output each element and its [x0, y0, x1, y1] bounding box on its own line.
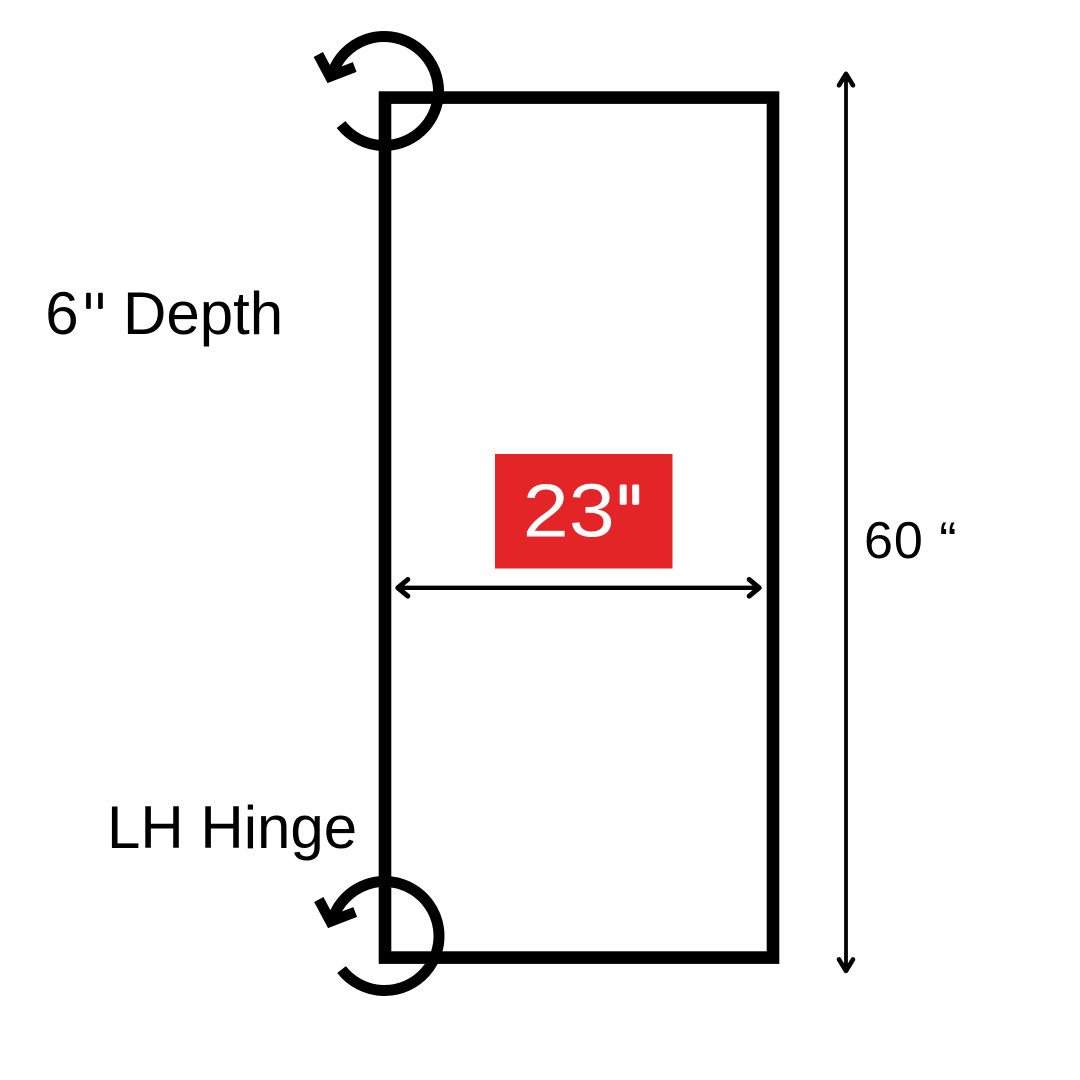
- svg-text:6: 6: [45, 280, 78, 347]
- svg-text:23: 23: [523, 469, 615, 553]
- svg-text:60 “: 60 “: [864, 512, 958, 570]
- svg-text:LH Hinge: LH Hinge: [107, 794, 357, 861]
- svg-text:Depth: Depth: [123, 280, 283, 347]
